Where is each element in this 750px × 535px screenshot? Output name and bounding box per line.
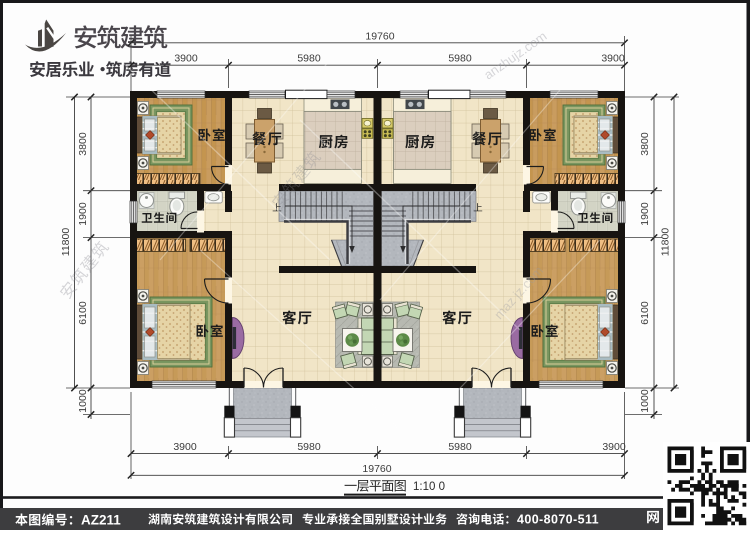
svg-text:6100: 6100: [77, 301, 89, 325]
svg-text:19760: 19760: [365, 31, 394, 43]
svg-text:19760: 19760: [362, 463, 391, 475]
svg-text:3900: 3900: [601, 53, 625, 65]
svg-text:5980: 5980: [448, 441, 472, 453]
svg-text:5980: 5980: [448, 53, 472, 65]
svg-text:5980: 5980: [297, 53, 321, 65]
svg-text:3900: 3900: [173, 441, 197, 453]
svg-text:3900: 3900: [602, 441, 626, 453]
svg-text:1900: 1900: [639, 202, 651, 226]
svg-text:5980: 5980: [297, 441, 321, 453]
svg-text:3800: 3800: [77, 132, 89, 156]
svg-text:1:10 0: 1:10 0: [413, 481, 445, 493]
svg-text:1000: 1000: [77, 389, 89, 413]
svg-text:1900: 1900: [77, 202, 89, 226]
svg-text:6100: 6100: [639, 301, 651, 325]
svg-text:11800: 11800: [660, 228, 672, 257]
svg-text:AZ211: AZ211: [81, 513, 121, 528]
svg-text:1000: 1000: [639, 389, 651, 413]
svg-text:400-8070-511: 400-8070-511: [517, 513, 599, 527]
svg-text:11800: 11800: [60, 228, 72, 257]
svg-text:3800: 3800: [639, 132, 651, 156]
svg-text:3900: 3900: [174, 53, 198, 65]
